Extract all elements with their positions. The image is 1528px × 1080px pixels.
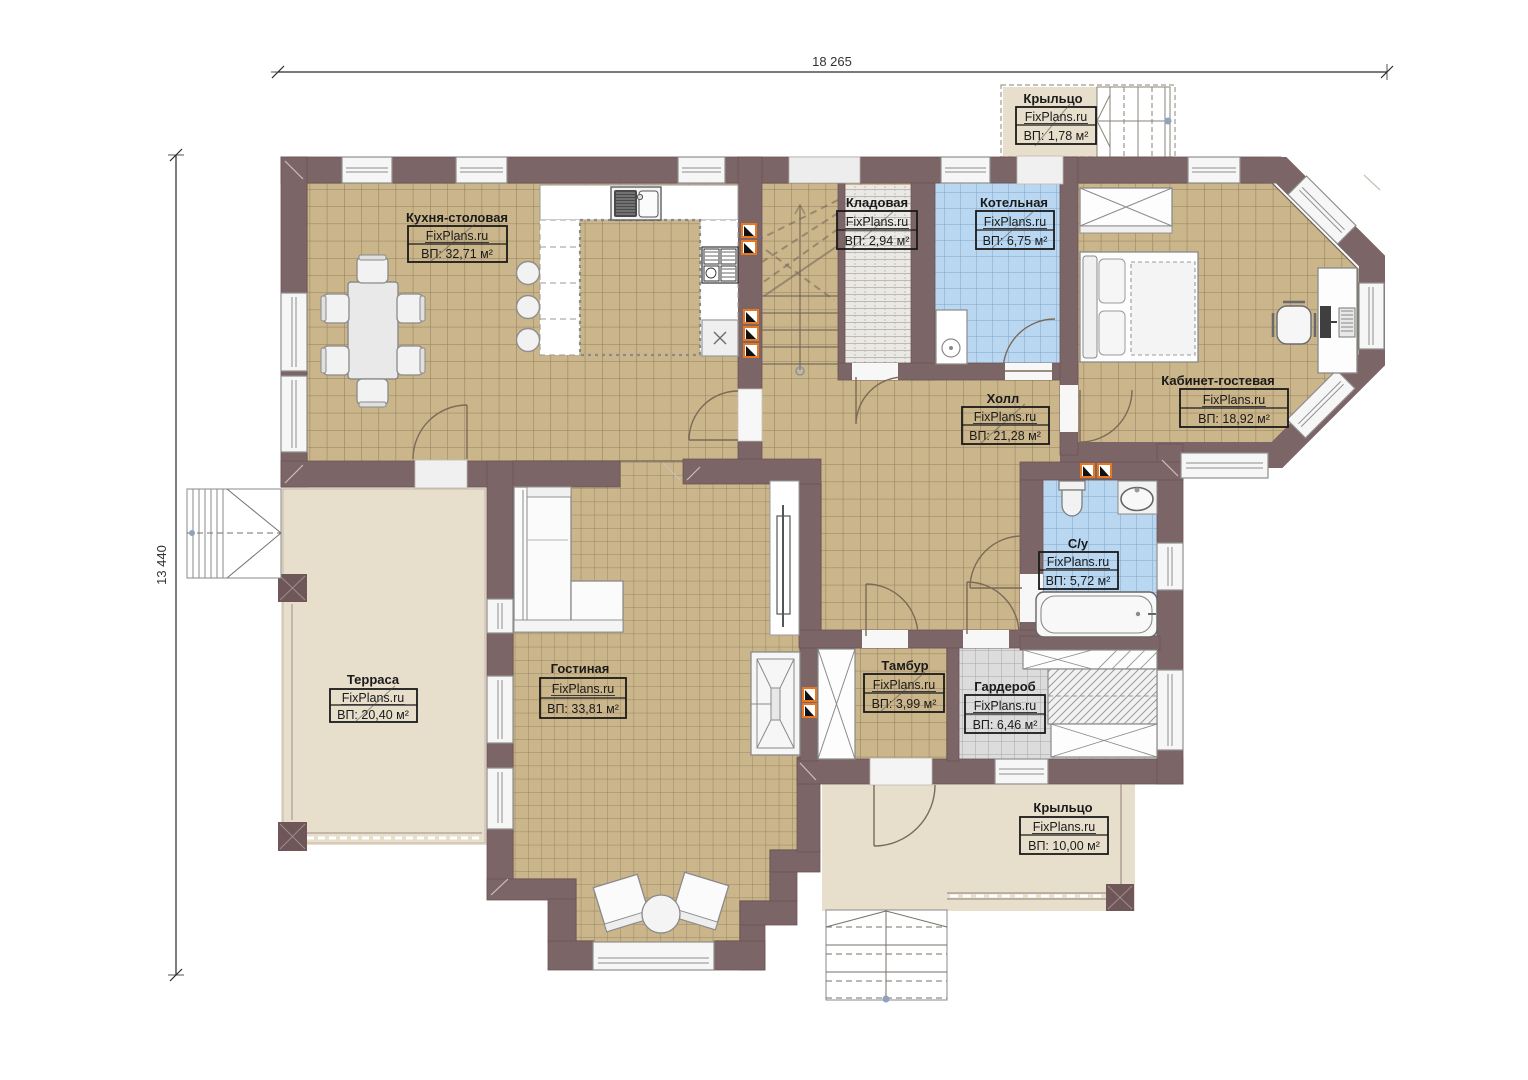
svg-text:FixPlans.ru: FixPlans.ru <box>342 691 405 705</box>
svg-text:С/у: С/у <box>1068 536 1089 551</box>
svg-text:Котельная: Котельная <box>980 195 1048 210</box>
svg-text:13 440: 13 440 <box>154 545 169 585</box>
svg-text:FixPlans.ru: FixPlans.ru <box>1025 110 1088 124</box>
svg-text:Крыльцо: Крыльцо <box>1033 800 1092 815</box>
svg-text:ВП: 5,72 м²: ВП: 5,72 м² <box>1046 574 1111 588</box>
svg-text:Кухня-столовая: Кухня-столовая <box>406 210 508 225</box>
svg-text:Гостиная: Гостиная <box>551 661 610 676</box>
svg-text:FixPlans.ru: FixPlans.ru <box>974 699 1037 713</box>
svg-text:ВП: 10,00 м²: ВП: 10,00 м² <box>1028 839 1100 853</box>
svg-text:ВП: 21,28 м²: ВП: 21,28 м² <box>969 429 1041 443</box>
svg-text:ВП: 32,71 м²: ВП: 32,71 м² <box>421 247 493 261</box>
svg-text:FixPlans.ru: FixPlans.ru <box>1033 820 1096 834</box>
svg-text:FixPlans.ru: FixPlans.ru <box>984 215 1047 229</box>
svg-text:FixPlans.ru: FixPlans.ru <box>873 678 936 692</box>
svg-text:Гардероб: Гардероб <box>974 679 1035 694</box>
svg-text:ВП: 20,40 м²: ВП: 20,40 м² <box>337 708 409 722</box>
svg-text:Холл: Холл <box>987 391 1020 406</box>
svg-text:Кабинет-гостевая: Кабинет-гостевая <box>1161 373 1274 388</box>
svg-text:FixPlans.ru: FixPlans.ru <box>1047 555 1110 569</box>
svg-text:18 265: 18 265 <box>812 54 852 69</box>
svg-text:FixPlans.ru: FixPlans.ru <box>1203 393 1266 407</box>
svg-text:ВП: 6,46 м²: ВП: 6,46 м² <box>973 718 1038 732</box>
svg-text:FixPlans.ru: FixPlans.ru <box>552 682 615 696</box>
svg-text:ВП: 18,92 м²: ВП: 18,92 м² <box>1198 412 1270 426</box>
svg-text:Крыльцо: Крыльцо <box>1023 91 1082 106</box>
svg-text:FixPlans.ru: FixPlans.ru <box>846 215 909 229</box>
svg-text:Тамбур: Тамбур <box>881 658 928 673</box>
svg-text:Кладовая: Кладовая <box>846 195 908 210</box>
svg-text:ВП: 33,81 м²: ВП: 33,81 м² <box>547 702 619 716</box>
svg-text:Терраса: Терраса <box>347 672 400 687</box>
svg-text:ВП: 1,78 м²: ВП: 1,78 м² <box>1024 129 1089 143</box>
svg-text:FixPlans.ru: FixPlans.ru <box>426 229 489 243</box>
svg-text:ВП: 6,75 м²: ВП: 6,75 м² <box>983 234 1048 248</box>
svg-text:ВП: 3,99 м²: ВП: 3,99 м² <box>872 697 937 711</box>
